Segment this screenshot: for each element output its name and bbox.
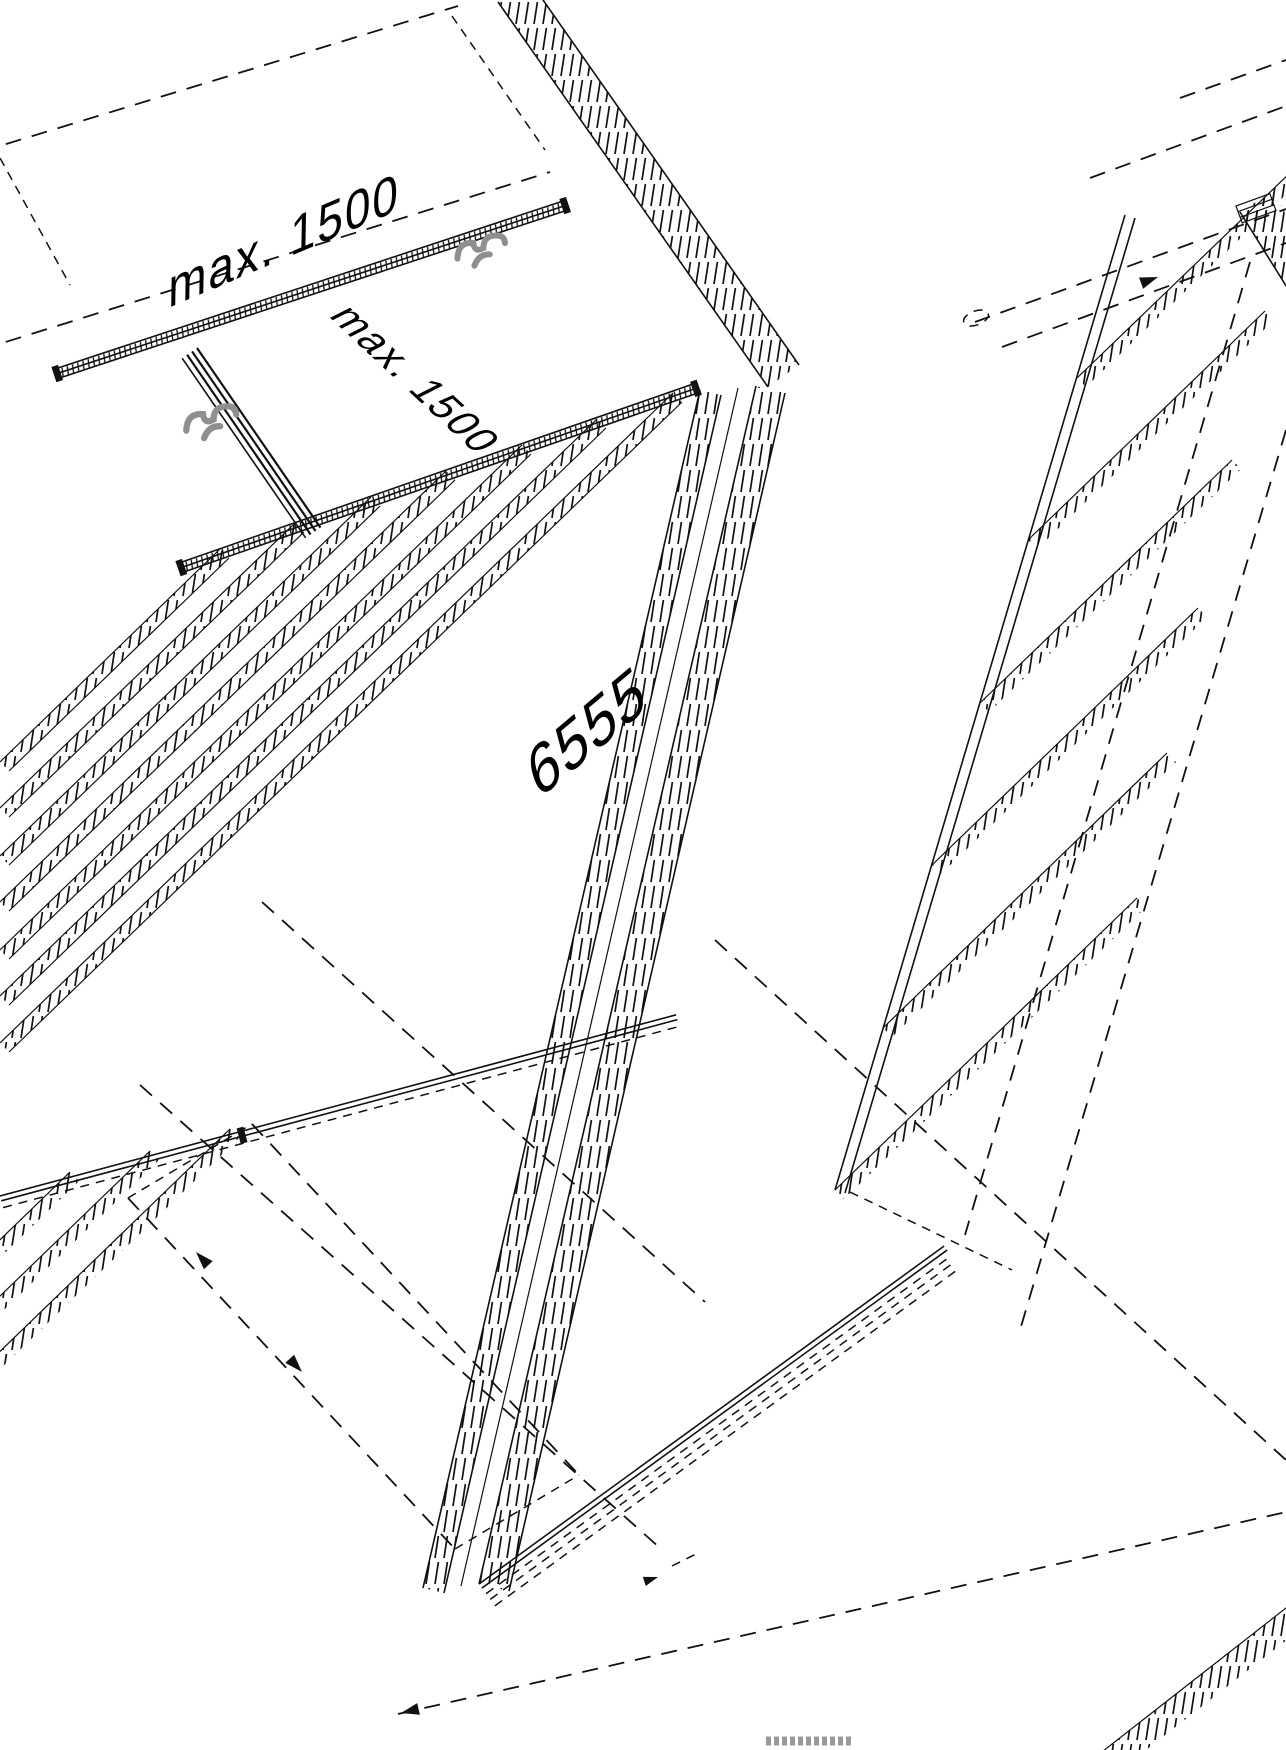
isometric-diagram-canvas: max. 1500 max. 1500 — [0, 0, 1286, 1750]
technical-drawing: max. 1500 max. 1500 — [0, 0, 1286, 1750]
